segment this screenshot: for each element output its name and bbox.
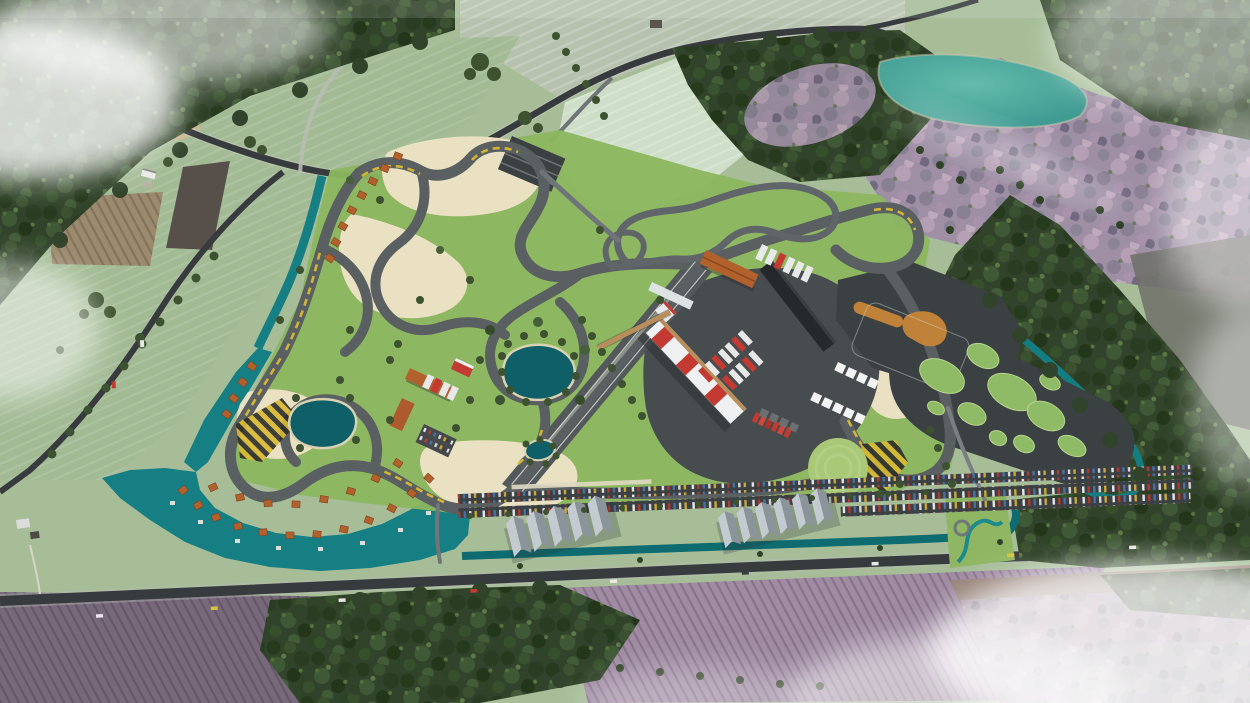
scene-canvas [0,0,1250,703]
aerial-render [0,0,1250,703]
north-farm [650,20,662,28]
teardrop-pond [289,399,356,448]
